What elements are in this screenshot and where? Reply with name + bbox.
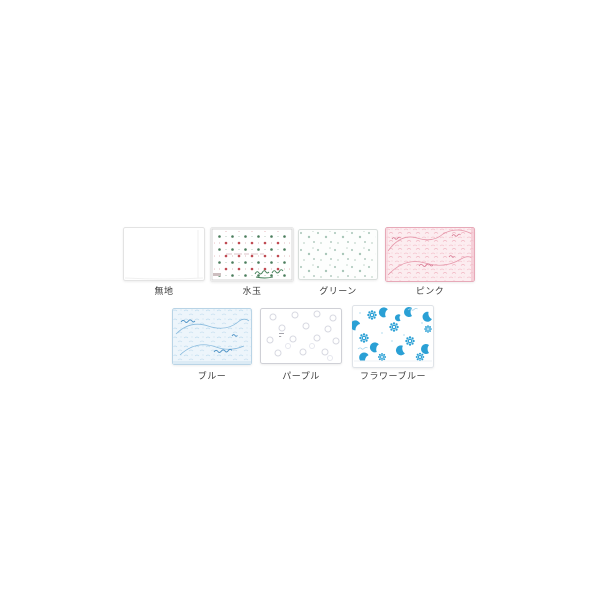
product-image-canvas: 無地 xyxy=(0,0,600,600)
swatch-image-flower-blue xyxy=(352,304,434,368)
swatch-card-green: グリーン xyxy=(298,225,378,296)
swatch-card-flower-blue: フラワーブルー xyxy=(352,304,434,381)
swatch-card-purple: パープル xyxy=(260,304,342,381)
green-dot-swatch-graphic xyxy=(298,229,378,280)
swatch-label: フラワーブルー xyxy=(360,371,426,381)
swatch-card-plain: 無地 xyxy=(123,225,205,296)
swatch-image-mizutama xyxy=(210,225,294,283)
swatch-image-blue xyxy=(172,304,252,368)
blue-lace-swatch-graphic xyxy=(172,308,252,365)
swatch-card-mizutama: 水玉 xyxy=(210,225,294,296)
plain-swatch-graphic xyxy=(123,227,205,281)
swatch-label: ブルー xyxy=(198,371,227,381)
swatch-label: 水玉 xyxy=(242,286,261,296)
swatch-image-pink xyxy=(385,225,475,283)
swatch-label: 無地 xyxy=(154,286,173,296)
swatch-label: ピンク xyxy=(416,286,445,296)
polka-dot-swatch-graphic xyxy=(210,227,294,282)
corner-tag-mark xyxy=(213,273,221,276)
swatch-label: パープル xyxy=(282,371,319,381)
swatch-label: グリーン xyxy=(319,286,357,296)
pink-lace-swatch-graphic xyxy=(385,227,475,282)
swatch-card-blue: ブルー xyxy=(172,304,252,381)
swatch-image-plain xyxy=(123,225,205,283)
swatch-card-pink: ピンク xyxy=(385,225,475,296)
swatch-image-green xyxy=(298,225,378,283)
flower-blue-swatch-graphic xyxy=(352,305,434,368)
swatch-image-purple xyxy=(260,304,342,368)
purple-ring-swatch-graphic xyxy=(260,308,342,364)
